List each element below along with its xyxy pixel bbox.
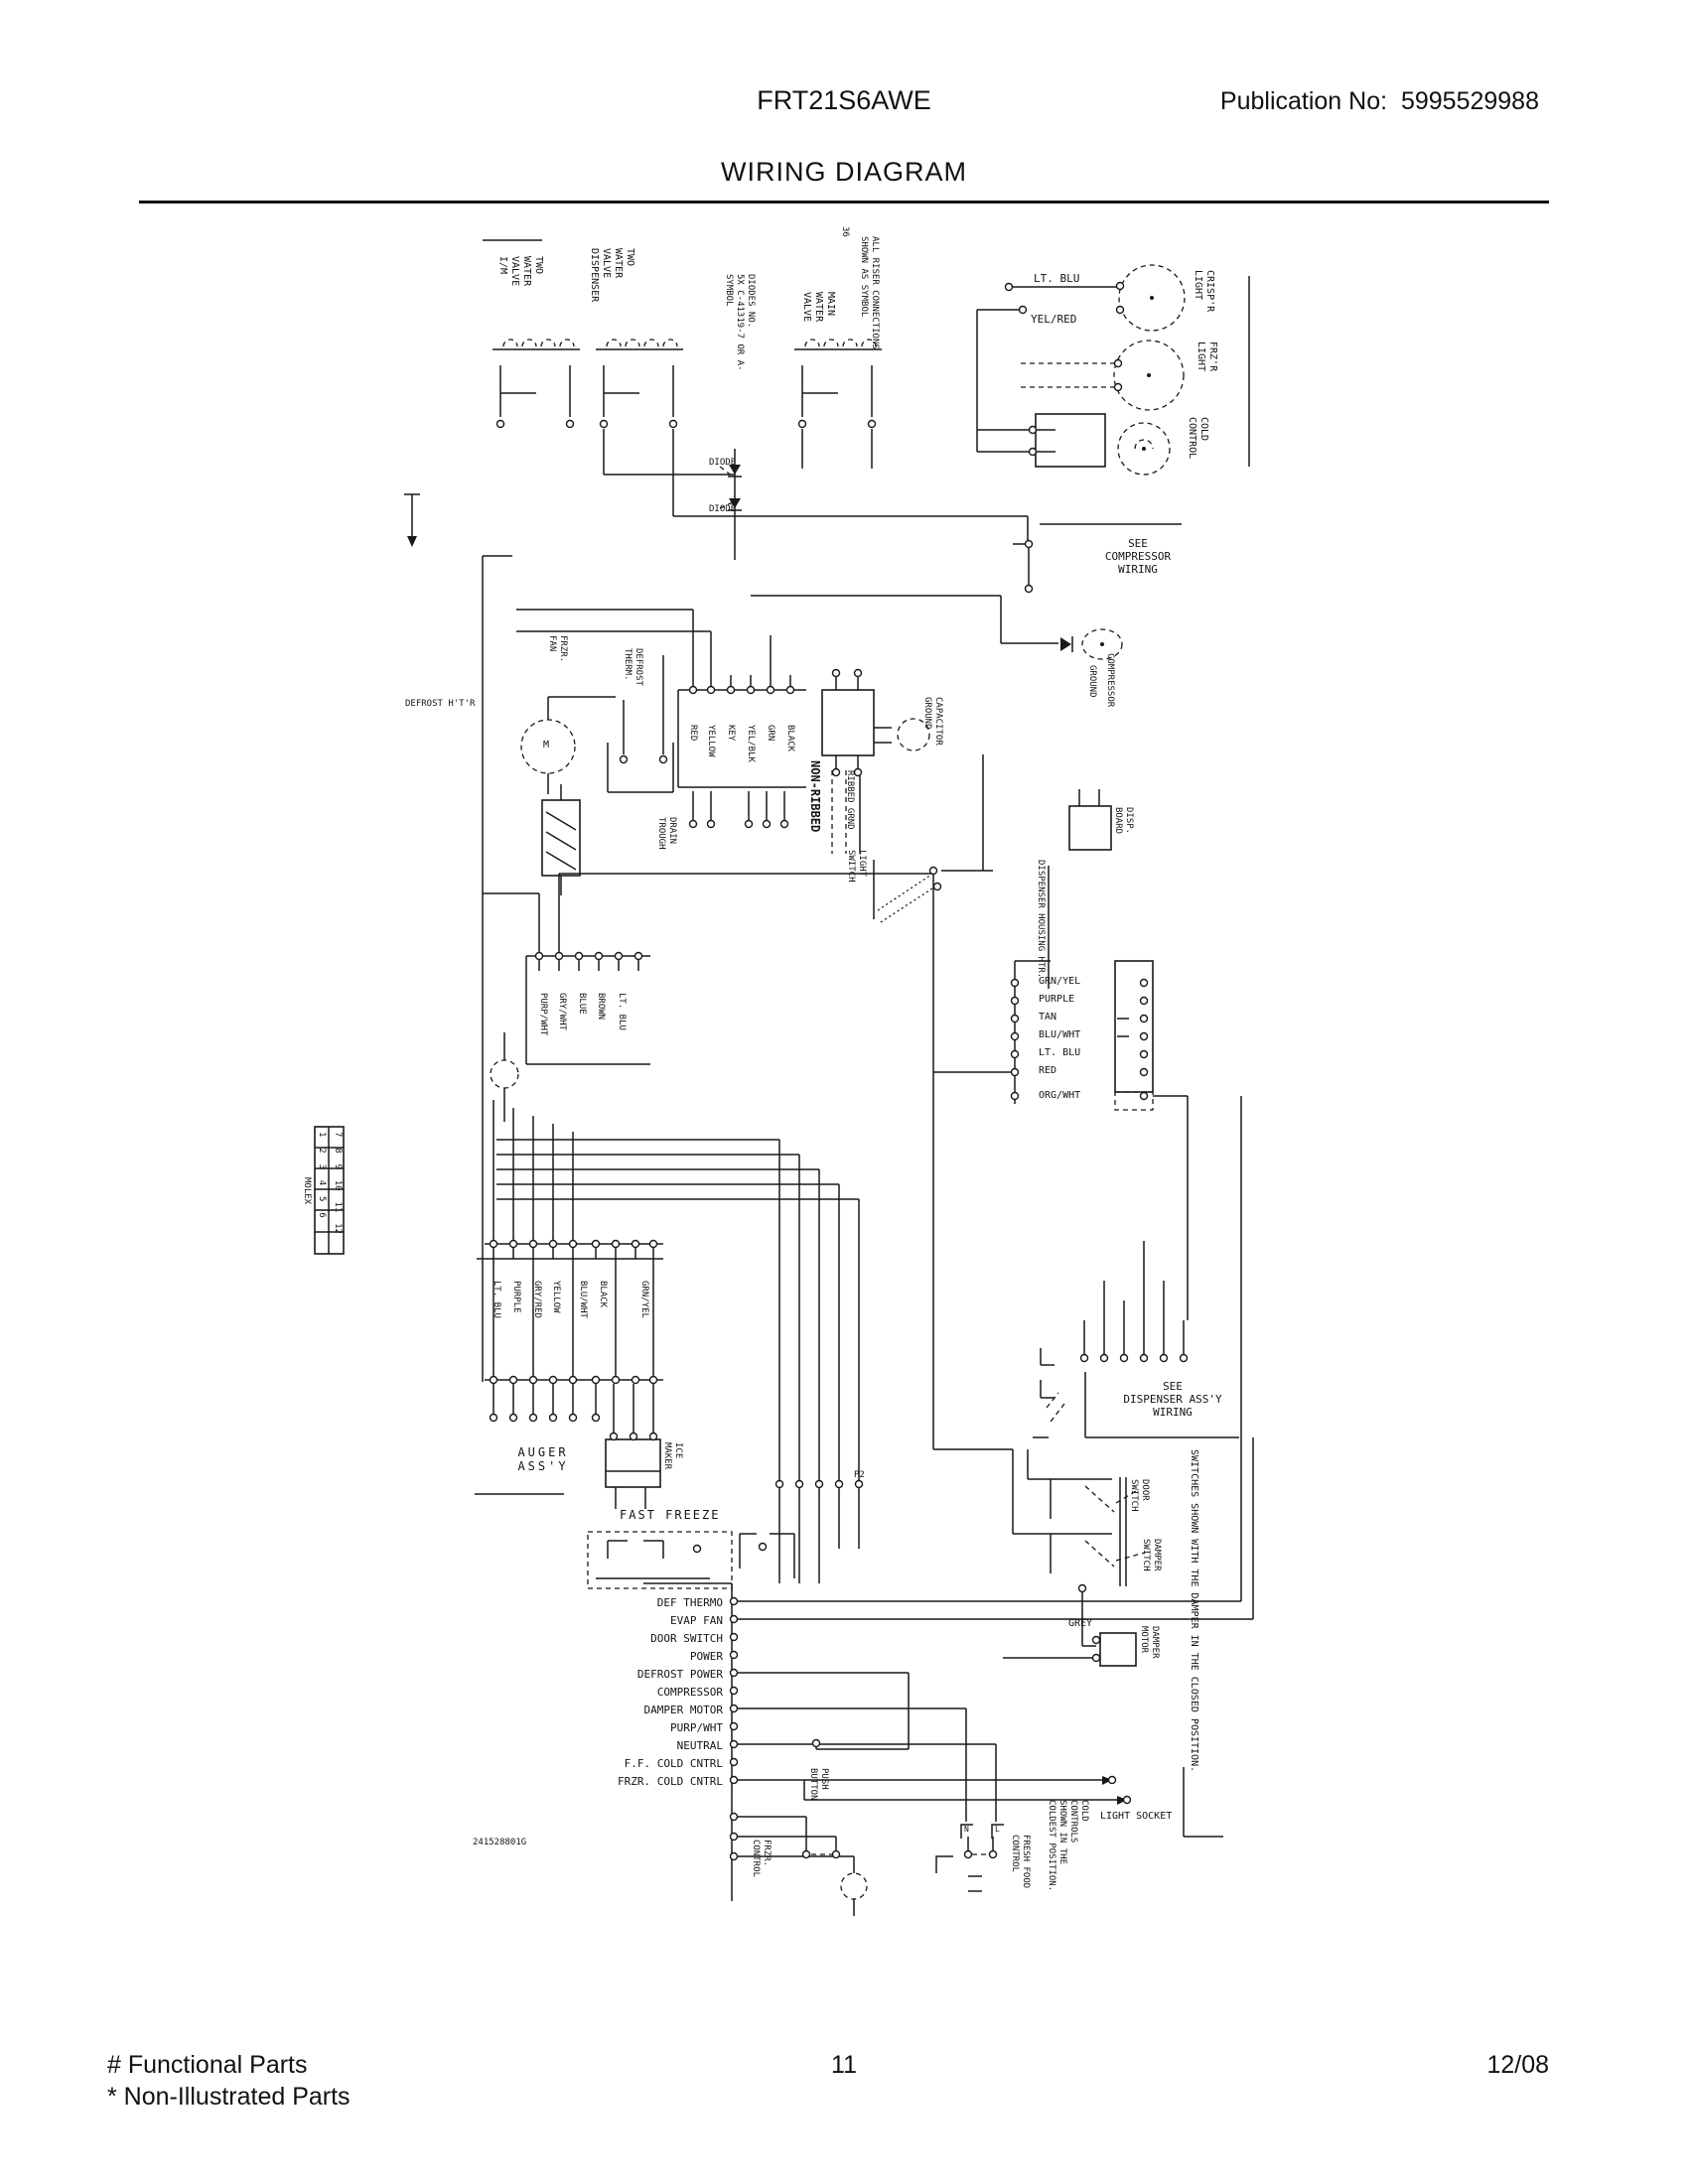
conn5-blue: BLUE bbox=[576, 993, 587, 1015]
disp-conn-red: RED bbox=[1039, 1065, 1056, 1077]
fan-motor-m: M bbox=[543, 740, 549, 751]
ground-label: GROUND bbox=[1086, 665, 1097, 698]
conn5-grywht: GRY/WHT bbox=[556, 993, 567, 1030]
board-pin-list: DEF THERMO EVAP FAN DOOR SWITCH POWER DE… bbox=[556, 1594, 723, 1791]
see-compressor-note: SEE COMPRESSOR WIRING bbox=[1090, 537, 1186, 576]
valve-disp-label: TWO WATER VALVE DISPENSER bbox=[588, 248, 635, 302]
push-button-label: PUSH BUTTON bbox=[807, 1768, 829, 1801]
disp-housing-htr-label: DISPENSER HOUSING HTR. bbox=[1035, 860, 1046, 978]
molex-label: MOLEX bbox=[301, 1177, 312, 1204]
frzr-light-label: FRZ'R LIGHT bbox=[1195, 341, 1218, 371]
wiring-diagram bbox=[0, 0, 1688, 2184]
light-switch-label: LIGHT SWITCH bbox=[845, 850, 867, 883]
diode-label-1: DIODE bbox=[709, 458, 736, 469]
strip1-grnyel: GRN/YEL bbox=[638, 1281, 649, 1318]
conn-pin-red: RED bbox=[687, 725, 698, 741]
strip1-gryred: GRY/RED bbox=[531, 1281, 542, 1318]
conn-pin-key: KEY bbox=[725, 725, 736, 741]
diodes-note: DIODES NO. 5X C-41319-7 OR A- SYMBOL bbox=[723, 274, 756, 371]
crisper-light-label: CRISP'R LIGHT bbox=[1192, 270, 1215, 312]
manual-page: FRT21S6AWE Publication No: 5995529988 WI… bbox=[0, 0, 1688, 2184]
component-outlines bbox=[315, 265, 1185, 1899]
conn-pin-grn: GRN bbox=[765, 725, 775, 741]
yel-red-label: YEL/RED bbox=[1031, 313, 1076, 326]
strip1-ltblu: LT. BLU bbox=[491, 1281, 501, 1318]
grey-label: GREY bbox=[1068, 1618, 1092, 1630]
drain-trough-label: DRAIN TROUGH bbox=[655, 817, 677, 850]
compressor-label: COMPRESSOR bbox=[1104, 653, 1115, 707]
drawing-number: 241528801G bbox=[473, 1838, 526, 1848]
auger-assy-label: AUGER ASS'Y bbox=[508, 1445, 578, 1473]
footer-non-illustrated-parts: * Non-Illustrated Parts bbox=[107, 2083, 351, 2112]
damper-motor-label: DAMPER MOTOR bbox=[1138, 1626, 1160, 1659]
defrost-htr-label: DEFROST H'T'R bbox=[405, 699, 475, 710]
footer-date: 12/08 bbox=[1192, 2051, 1549, 2080]
light-socket-label: LIGHT SOCKET bbox=[1100, 1811, 1172, 1823]
wire-lines bbox=[404, 240, 1253, 1916]
molex-pins-7-12: 7 8 9 10 11 12 bbox=[332, 1132, 343, 1234]
conn-pin-yellow: YELLOW bbox=[705, 725, 716, 757]
switches-note: SWITCHES SHOWN WITH THE DAMPER IN THE CL… bbox=[1188, 1449, 1199, 1772]
strip1-purple: PURPLE bbox=[510, 1281, 521, 1313]
molex-pins-1-6: 1 2 3 4 5 6 bbox=[316, 1132, 327, 1218]
frzr-fan-label: FRZR. FAN bbox=[546, 635, 568, 662]
strip1-yellow: YELLOW bbox=[550, 1281, 561, 1313]
disp-conn-tan: TAN bbox=[1039, 1012, 1056, 1024]
see-dispenser-note: SEE DISPENSER ASS'Y WIRING bbox=[1088, 1380, 1257, 1419]
terminal-l-label: L bbox=[995, 1825, 1000, 1835]
frzr-control-label: FRZR. CONTROL bbox=[750, 1840, 772, 1877]
disp-conn-orgwht: ORG/WHT bbox=[1039, 1090, 1080, 1102]
disp-conn-purple: PURPLE bbox=[1039, 994, 1074, 1006]
ice-maker-label: ICE MAKER bbox=[661, 1442, 683, 1469]
capacitor-label: CAPACITOR GROUND bbox=[921, 697, 943, 746]
strip1-black: BLACK bbox=[597, 1281, 608, 1307]
conn5-purpwht: PURP/WHT bbox=[537, 993, 548, 1035]
damper-switch-label: DAMPER SWITCH bbox=[1140, 1539, 1162, 1571]
non-ribbed-label: NON-RIBBED bbox=[808, 760, 822, 832]
door-switch-label: DOOR SWITCH bbox=[1128, 1479, 1150, 1512]
cold-controls-note: COLD CONTROLS SHOWN IN THE COLDEST POSIT… bbox=[1046, 1800, 1089, 1891]
fast-freeze-label: FAST FREEZE bbox=[620, 1508, 720, 1522]
sheet-number: 36 bbox=[839, 226, 850, 237]
defrost-therm-label: DEFROST THERM. bbox=[622, 648, 643, 686]
disp-conn-bluwht: BLU/WHT bbox=[1039, 1029, 1080, 1041]
diode-label-2: DIODE bbox=[709, 504, 736, 515]
ribbed-label: RIBBED GRND bbox=[844, 770, 855, 830]
disp-conn-grnyel: GRN/YEL bbox=[1039, 976, 1080, 988]
conn-pin-black: BLACK bbox=[784, 725, 795, 751]
disp-conn-ltblu: LT. BLU bbox=[1039, 1047, 1080, 1059]
conn-pin-yelblk: YEL/BLK bbox=[745, 725, 756, 762]
p2-label: P2 bbox=[854, 1470, 865, 1481]
disp-board-label: DISP. BOARD bbox=[1112, 807, 1134, 834]
conn5-brown: BROWN bbox=[595, 993, 606, 1020]
terminal-n-label: N bbox=[964, 1825, 969, 1835]
fresh-food-control-label: FRESH FOOD CONTROL bbox=[1009, 1835, 1031, 1888]
strip1-bluwht: BLU/WHT bbox=[577, 1281, 588, 1318]
cold-control-label: COLD CONTROL bbox=[1186, 417, 1209, 459]
valve-im-label: TWO WATER VALVE I/M bbox=[496, 256, 544, 286]
conn5-ltblu: LT. BLU bbox=[616, 993, 627, 1030]
riser-note: ALL RISER CONNECTIONS SHOWN AS SYMBOL bbox=[858, 236, 880, 349]
valve-main-label: MAIN WATER VALVE bbox=[800, 292, 836, 322]
lt-blu-label: LT. BLU bbox=[1034, 272, 1079, 285]
